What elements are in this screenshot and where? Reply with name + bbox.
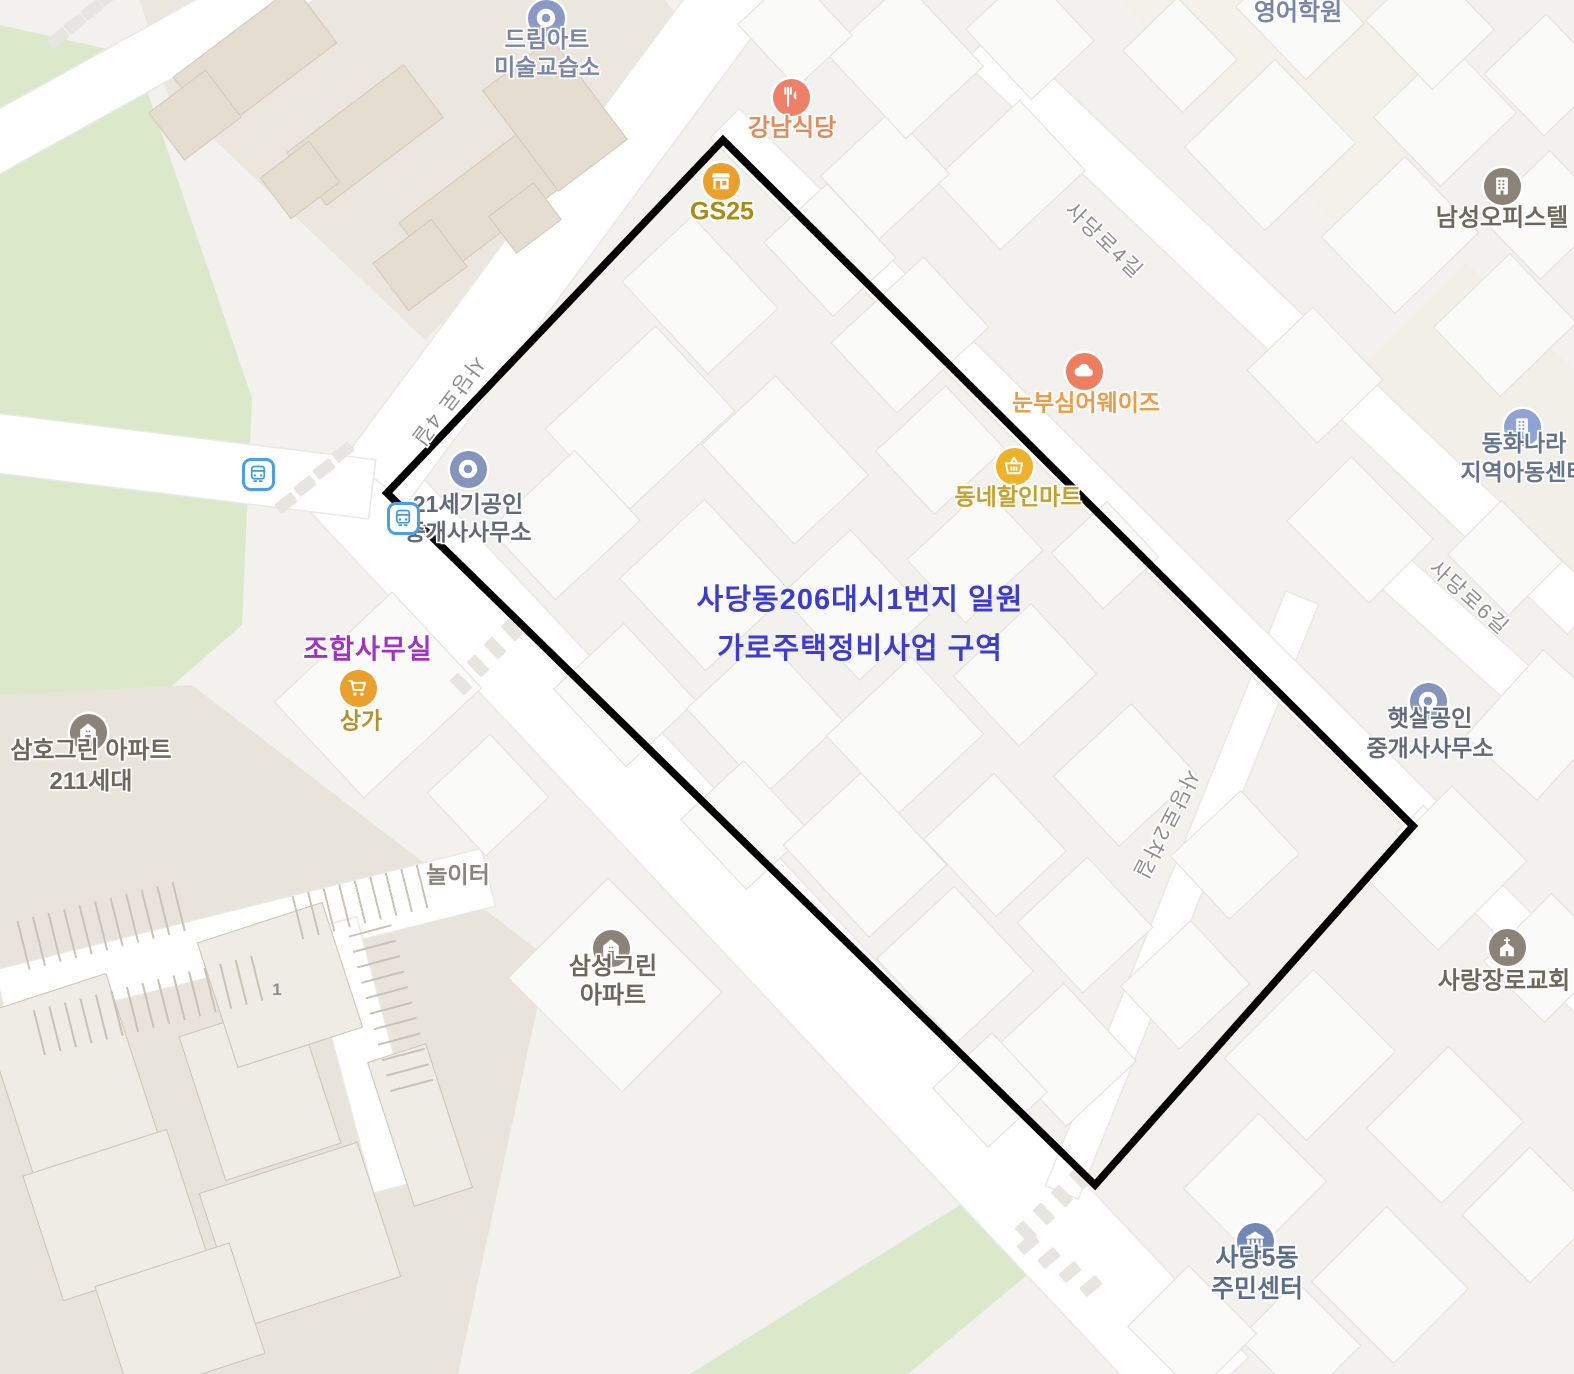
street-label-3: 사당로2차길: [1126, 765, 1207, 886]
project-area-annotation: 사당동206대시1번지 일원 가로주택정비사업 구역: [697, 576, 1024, 674]
poi-label-line: 동화나라: [1461, 429, 1574, 458]
poi-c21-realty-label[interactable]: 21세기공인중개사사무소: [405, 490, 532, 546]
poi-label-line: 211세대: [10, 766, 171, 797]
poi-label-line: 중개사사무소: [1367, 733, 1494, 763]
poi-label-line: 강남식당: [748, 114, 836, 143]
poi-nunbusim-aways-label[interactable]: 눈부심어웨이즈: [1012, 389, 1160, 418]
poi-label-line: 사랑장로교회: [1438, 967, 1570, 996]
project-area-annotation-line1: 사당동206대시1번지 일원: [697, 576, 1024, 625]
poi-layer: 드림아트미술교습소 강남식당 GS25어림아이영어학원 남성오피스텔눈부심어웨이…: [0, 0, 1574, 1374]
poi-label-line: 영어학원: [1254, 0, 1342, 28]
poi-label-line: 눈부심어웨이즈: [1012, 389, 1160, 418]
poi-gs25-label[interactable]: GS25: [690, 198, 754, 227]
poi-c21-realty-icon donut-icon[interactable]: [450, 451, 487, 488]
poi-gangnam-restaurant-label[interactable]: 강남식당: [748, 114, 836, 143]
poi-label-line: 놀이터: [426, 861, 489, 890]
poi-label-line: 삼성그린: [569, 952, 657, 981]
street-label-1: 사당로4길: [1059, 195, 1151, 285]
poi-dongne-discount-mart-label[interactable]: 동네할인마트: [955, 483, 1082, 512]
poi-label-line: 아파트: [569, 981, 657, 1010]
poi-sadang5-community-center-label[interactable]: 사당5동주민센터: [1211, 1243, 1303, 1305]
bus-stop-icon-0[interactable]: [242, 458, 275, 491]
poi-english-academy-label[interactable]: 어림아이영어학원: [1254, 0, 1342, 28]
building-number: 1: [272, 980, 281, 1000]
poi-gangnam-restaurant-icon restaurant-icon[interactable]: [773, 79, 810, 116]
street-label-2: 사당로6길: [1423, 553, 1517, 642]
poi-label-line: 지역아동센터: [1461, 458, 1574, 487]
poi-label-line: 상가: [340, 707, 382, 736]
poi-gs25-icon storefront-icon[interactable]: [703, 163, 740, 200]
poi-label-line: GS25: [690, 198, 754, 227]
poi-namseong-officetel-label[interactable]: 남성오피스텔: [1436, 204, 1568, 233]
poi-label-line: 사당5동: [1211, 1243, 1303, 1274]
poi-dongne-discount-mart-icon basket-icon[interactable]: [996, 448, 1033, 485]
poi-label-line: 미술교습소: [494, 53, 600, 81]
poi-label-line: 햇살공인: [1367, 703, 1494, 733]
poi-playground-label[interactable]: 놀이터: [426, 861, 489, 890]
project-area-annotation-line2: 가로주택정비사업 구역: [697, 625, 1024, 674]
poi-sangga-shop-label[interactable]: 상가: [340, 707, 382, 736]
poi-label-line: 동네할인마트: [955, 483, 1082, 512]
poi-label-line: 21세기공인: [405, 490, 532, 518]
poi-label-line: 남성오피스텔: [1436, 204, 1568, 233]
bus-stop-icon-1[interactable]: [387, 502, 420, 535]
poi-samsung-green-apt-label[interactable]: 삼성그린아파트: [569, 952, 657, 1010]
poi-nunbusim-aways-icon cloud-icon[interactable]: [1066, 353, 1103, 390]
street-label-0: 사당로 4길: [405, 350, 493, 453]
poi-donghwa-childrens-center-label[interactable]: 동화나라지역아동센터: [1461, 429, 1574, 487]
poi-label-line: 중개사사무소: [405, 518, 532, 546]
poi-namseong-officetel-icon building-icon[interactable]: [1484, 168, 1521, 205]
poi-label-line: 드림아트: [494, 25, 600, 53]
union-office-label: 조합사무실: [303, 628, 432, 667]
poi-label-line: 삼호그린 아파트: [10, 735, 171, 766]
poi-haessal-realty-label[interactable]: 햇살공인중개사사무소: [1367, 703, 1494, 763]
poi-sangga-shop-icon cart-icon[interactable]: [340, 670, 377, 707]
poi-samho-green-apt-label[interactable]: 삼호그린 아파트211세대: [10, 735, 171, 797]
poi-dream-art-academy-label[interactable]: 드림아트미술교습소: [494, 25, 600, 81]
map-canvas[interactable]: 드림아트미술교습소 강남식당 GS25어림아이영어학원 남성오피스텔눈부심어웨이…: [0, 0, 1574, 1374]
poi-sarang-church-icon church-icon[interactable]: [1489, 929, 1526, 966]
poi-sarang-church-label[interactable]: 사랑장로교회: [1438, 967, 1570, 996]
poi-label-line: 주민센터: [1211, 1274, 1303, 1305]
